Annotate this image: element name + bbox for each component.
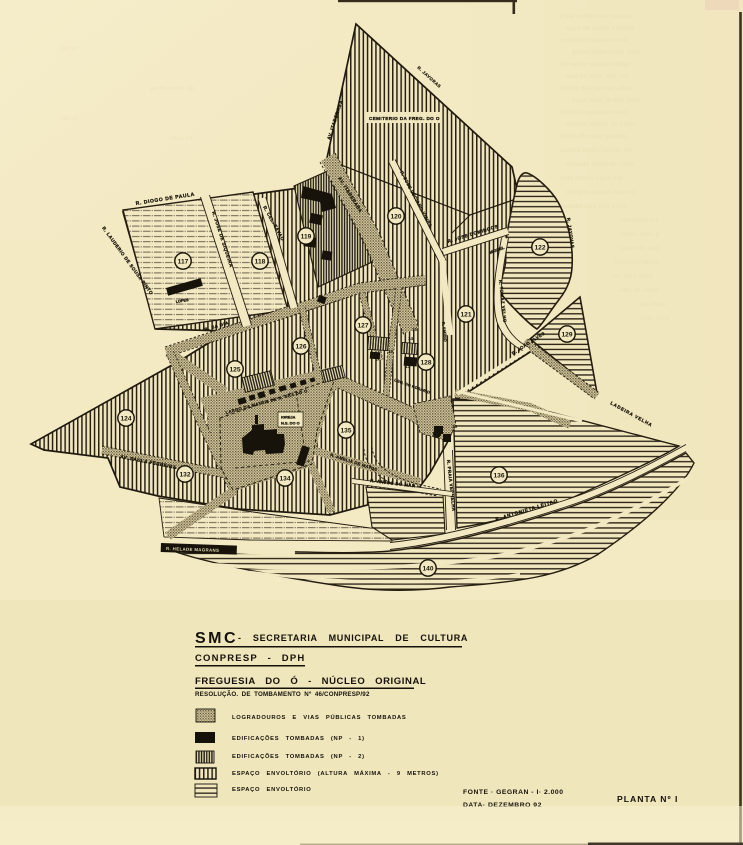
svg-text:120: 120	[390, 214, 401, 221]
svg-text:129: 129	[561, 332, 572, 339]
svg-text:ESPAÇO ENVOLTÓRIO: ESPAÇO ENVOLTÓRIO	[232, 785, 311, 793]
svg-text:FREGUESIA DO Ó - NÚCLEO ORIGIN: FREGUESIA DO Ó - NÚCLEO ORIGINAL	[195, 675, 426, 687]
svg-text:125: 125	[229, 367, 240, 374]
svg-text:- SECRETARIA MUNICIPAL DE CULT: - SECRETARIA MUNICIPAL DE CULTURA	[238, 633, 468, 643]
svg-text:CEMITERIO DA FREG. DO O: CEMITERIO DA FREG. DO O	[369, 116, 440, 121]
svg-text:15: 15	[412, 327, 418, 332]
svg-text:SMC: SMC	[195, 630, 238, 647]
svg-text:14: 14	[408, 336, 414, 341]
svg-text:FONTE · GEGRAN - I· 2.000: FONTE · GEGRAN - I· 2.000	[463, 789, 564, 796]
svg-text:RESOLUÇÃO. DE TOMBAMENTO Nº 46: RESOLUÇÃO. DE TOMBAMENTO Nº 46/CONPRESP/…	[195, 691, 370, 698]
svg-text:140: 140	[422, 566, 433, 573]
svg-text:127: 127	[357, 323, 368, 330]
svg-text:10: 10	[388, 349, 394, 354]
svg-text:EDIFICAÇÕES TOMBADAS (NP - 1): EDIFICAÇÕES TOMBADAS (NP - 1)	[232, 735, 365, 742]
svg-text:15: 15	[452, 424, 458, 429]
svg-text:124: 124	[120, 416, 131, 423]
svg-text:N.S. DO O: N.S. DO O	[281, 421, 300, 426]
svg-text:128: 128	[420, 360, 431, 367]
svg-text:IGREJA: IGREJA	[281, 415, 296, 420]
svg-text:EDIFICAÇÕES TOMBADAS (NP - 2): EDIFICAÇÕES TOMBADAS (NP - 2)	[232, 753, 365, 760]
svg-text:PLANTA Nº I: PLANTA Nº I	[617, 794, 678, 804]
svg-text:135: 135	[340, 428, 351, 435]
svg-text:ESPAÇO ENVOLTÓRIO (ALTURA MÁXI: ESPAÇO ENVOLTÓRIO (ALTURA MÁXIMA - 9 MET…	[232, 769, 439, 777]
svg-text:126: 126	[295, 344, 306, 351]
svg-text:122: 122	[534, 245, 545, 252]
svg-text:121: 121	[460, 312, 471, 319]
svg-text:134: 134	[279, 476, 290, 483]
svg-text:117: 117	[178, 259, 189, 266]
svg-text:119: 119	[301, 234, 312, 241]
svg-text:136: 136	[493, 473, 504, 480]
svg-text:13: 13	[405, 364, 411, 369]
svg-text:LOGRADOUROS E VIAS PÚBLICAS TO: LOGRADOUROS E VIAS PÚBLICAS TOMBADAS	[232, 714, 406, 721]
svg-text:132: 132	[179, 472, 190, 479]
svg-text:118: 118	[255, 259, 266, 266]
svg-text:CONPRESP - DPH: CONPRESP - DPH	[195, 653, 305, 664]
